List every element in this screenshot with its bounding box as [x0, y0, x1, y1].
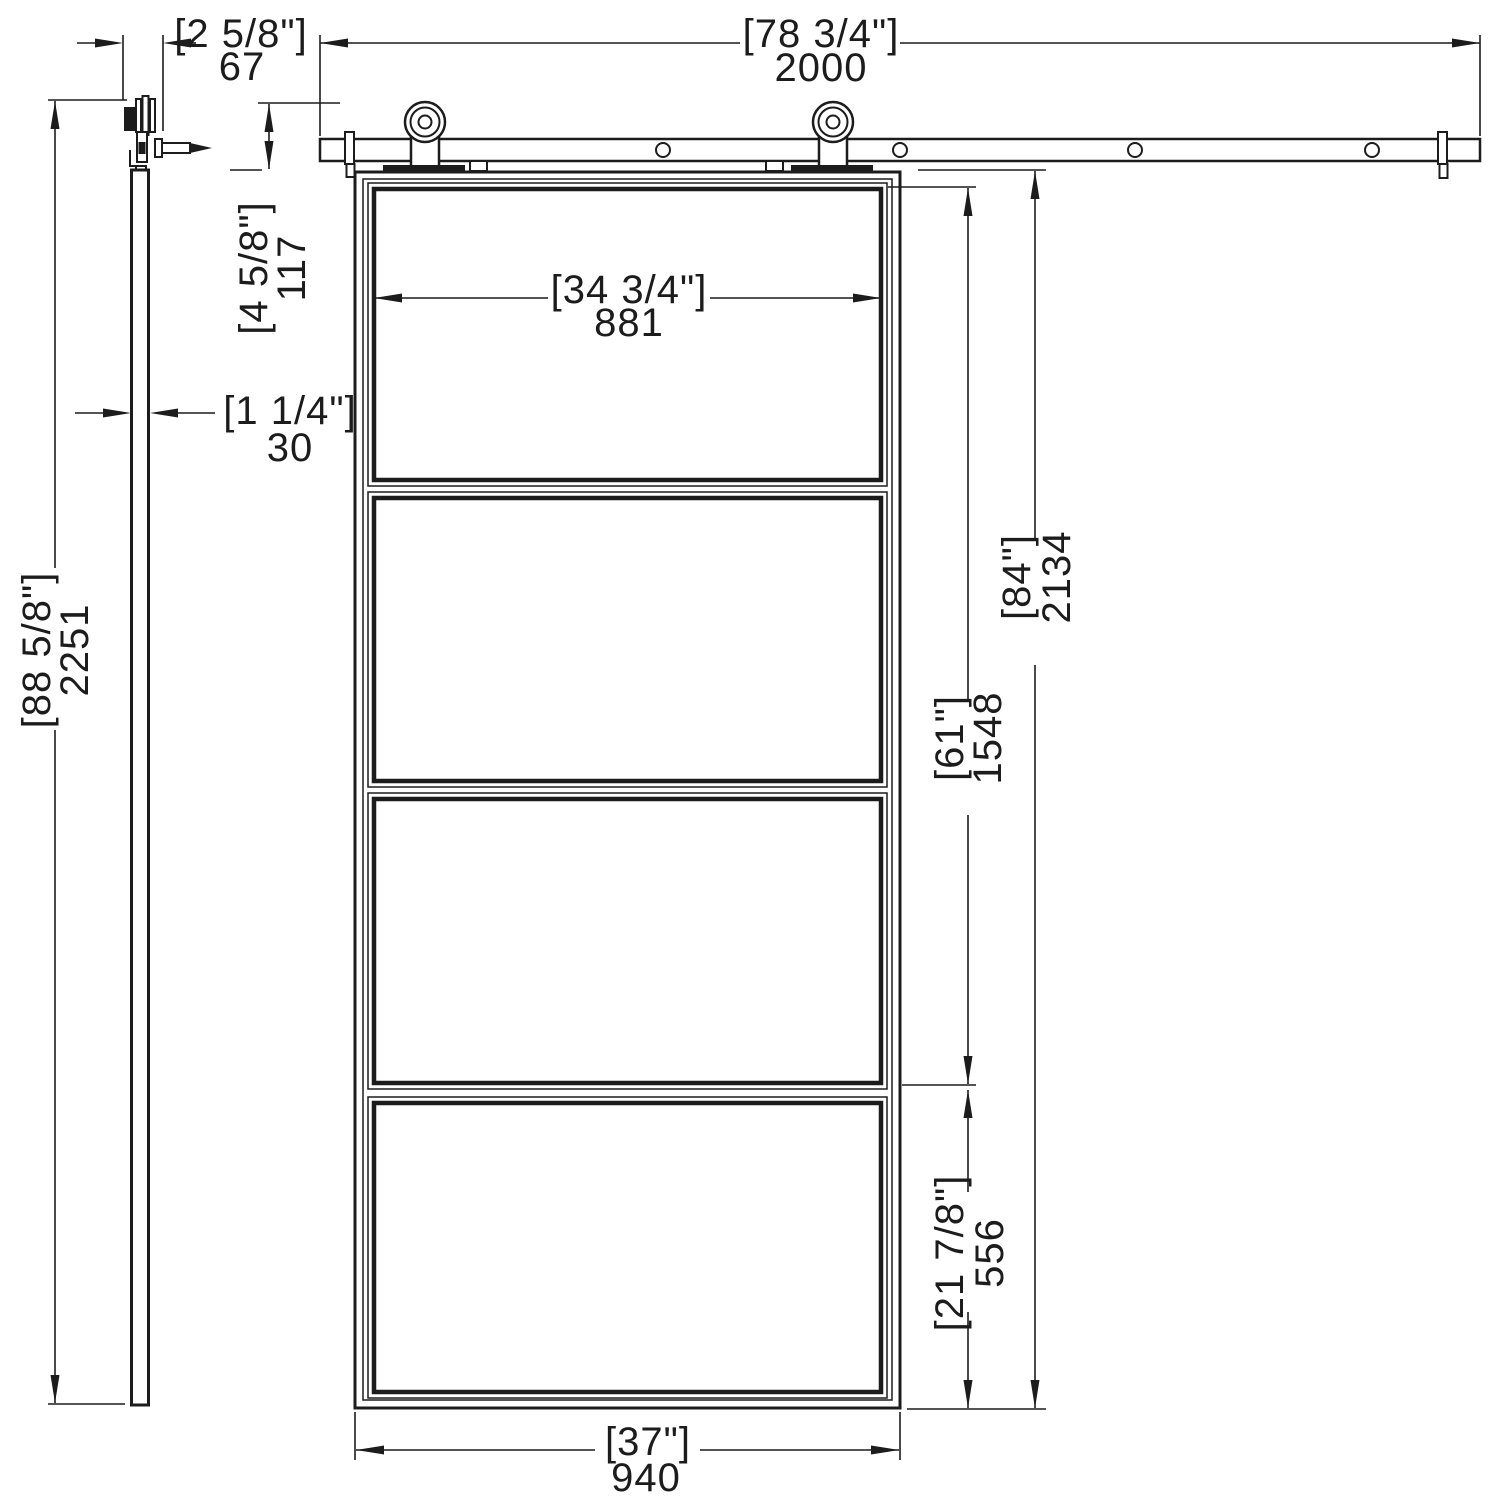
door-outline	[355, 172, 900, 1408]
dim-glass-width-mm: 881	[594, 301, 664, 345]
dim-bottom-section-height: [21 7/8"] 556	[928, 1090, 1012, 1408]
dim-track-to-door-top-mm: 117	[270, 235, 314, 302]
dim-door-thickness-mm: 30	[267, 426, 314, 470]
dim-bottom-section-height-mm: 556	[968, 1218, 1012, 1288]
dim-overall-height-mm: 2251	[53, 604, 97, 697]
dim-hardware-offset-mm: 67	[219, 45, 266, 89]
dim-glass-section-height: [61"] 1548	[888, 187, 1010, 1085]
dim-track-length: [78 3/4"] 2000	[320, 12, 1480, 136]
anti-jump-block-left	[470, 161, 487, 171]
hanger-bolt	[139, 142, 146, 154]
mounting-screw-icon	[155, 139, 212, 157]
track-end-stop-right	[1438, 132, 1448, 178]
dim-door-width: [37"] 940	[355, 1412, 900, 1500]
dim-door-height-mm: 2134	[1035, 531, 1079, 624]
dim-door-thickness: [1 1/4"] 30	[75, 389, 357, 470]
dim-hardware-offset: [2 5/8"] 67	[77, 12, 308, 131]
dim-overall-height: [88 5/8"] 2251	[15, 100, 127, 1404]
door-edge-profile	[132, 170, 149, 1405]
dim-track-length-mm: 2000	[775, 46, 868, 90]
track-cross-section	[124, 107, 135, 131]
dim-bottom-section-height-inches: [21 7/8"]	[928, 1175, 972, 1332]
dim-door-width-mm: 940	[611, 1456, 681, 1500]
dim-glass-section-height-mm: 1548	[966, 692, 1010, 785]
hanger-side-view	[136, 96, 155, 162]
drawing-page: [2 5/8"] 67 [78 3/4"] 2000 [4 5/8"] 117	[0, 0, 1500, 1500]
anti-jump-block-right	[766, 161, 783, 171]
roller-hanger-right	[791, 102, 873, 173]
track-end-stop-left	[345, 132, 355, 177]
barn-door-technical-drawing: [2 5/8"] 67 [78 3/4"] 2000 [4 5/8"] 117	[0, 0, 1500, 1500]
side-view	[124, 96, 212, 1405]
roller-hanger-left	[383, 102, 465, 173]
dim-door-height-inches: [84"]	[995, 534, 1039, 620]
